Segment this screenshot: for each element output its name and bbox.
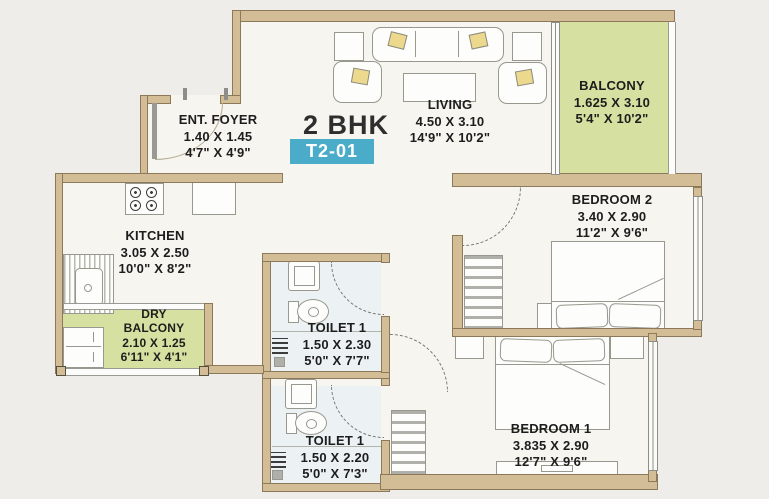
room-name: DRY (121, 307, 188, 321)
kitchen-platform (192, 182, 236, 215)
side-table (334, 32, 364, 61)
bed (551, 241, 665, 335)
wall (204, 303, 213, 374)
balcony-sliding-door (551, 22, 560, 175)
bed-line (496, 364, 609, 365)
room-dim-ft: 5'0" X 7'7" (303, 353, 372, 370)
balcony-railing (668, 22, 676, 174)
wall (262, 253, 390, 262)
dry-balcony-railing (62, 368, 205, 376)
room-dim-ft: 14'9" X 10'2" (410, 130, 490, 147)
bedside-table (455, 336, 484, 359)
room-dim-ft: 5'4" X 10'2" (574, 111, 650, 128)
washbasin (288, 261, 320, 291)
room-dim-m: 3.835 X 2.90 (511, 438, 592, 455)
room-dim-m: 1.50 X 2.30 (303, 337, 372, 354)
wall (55, 173, 283, 183)
duct-hatch (272, 338, 288, 354)
room-name: KITCHEN (119, 228, 192, 245)
washbasin-bowl (291, 384, 312, 404)
wall (452, 173, 702, 187)
bed (495, 334, 610, 430)
room-label-toilet-lower: TOILET 1 1.50 X 2.20 5'0" X 7'3" (301, 433, 370, 483)
pillow (500, 338, 553, 363)
armchair-cushion (351, 68, 370, 86)
plan-type-title: 2 BHK (303, 110, 389, 141)
sofa-divider (415, 31, 416, 57)
wc-bowl (295, 411, 327, 435)
railing-post (56, 366, 66, 376)
room-dim-ft: 4'7" X 4'9" (179, 145, 258, 162)
room-label-kitchen: KITCHEN 3.05 X 2.50 10'0" X 8'2" (119, 228, 192, 278)
pillow (553, 338, 606, 363)
unit-number-badge: T2-01 (290, 139, 374, 164)
wall (262, 371, 390, 379)
room-dim-m: 1.625 X 3.10 (574, 95, 650, 112)
sink-drain (84, 284, 92, 292)
room-label-living: LIVING 4.50 X 3.10 14'9" X 10'2" (410, 97, 490, 147)
room-label-bedroom2: BEDROOM 2 3.40 X 2.90 11'2" X 9'6" (572, 192, 653, 242)
room-dim-ft: 6'11" X 4'1" (121, 350, 188, 364)
room-dim-ft: 12'7" X 9'6" (511, 454, 592, 471)
sofa-divider (458, 31, 459, 57)
burner (130, 187, 141, 198)
armchair-cushion (515, 69, 534, 87)
wall (452, 235, 463, 333)
pillow (609, 303, 662, 329)
bedroom2-window (693, 196, 703, 321)
wardrobe (391, 410, 426, 476)
room-name: BEDROOM 1 (511, 421, 592, 438)
floor-plan: 2 BHK T2-01 LIVING 4.50 X 3.10 14'9" X 1… (0, 0, 769, 499)
room-dim-m: 2.10 X 1.25 (121, 336, 188, 350)
room-dim-m: 3.40 X 2.90 (572, 209, 653, 226)
bed-line (552, 301, 664, 302)
room-dim-ft: 10'0" X 8'2" (119, 261, 192, 278)
room-name: LIVING (410, 97, 490, 114)
blanket-fold (560, 363, 606, 385)
unit-handle (93, 332, 94, 342)
bedroom1-window (648, 341, 658, 471)
washbasin (285, 379, 317, 409)
room-dim-ft: 11'2" X 9'6" (572, 225, 653, 242)
room-label-dry-balcony: DRY BALCONY 2.10 X 1.25 6'11" X 4'1" (121, 307, 188, 365)
pillow (556, 303, 609, 329)
room-name: BEDROOM 2 (572, 192, 653, 209)
room-label-bedroom1: BEDROOM 1 3.835 X 2.90 12'7" X 9'6" (511, 421, 592, 471)
room-dim-m: 1.50 X 2.20 (301, 450, 370, 467)
room-name: TOILET 1 (301, 433, 370, 450)
side-table (512, 32, 542, 61)
duct-box (274, 357, 285, 367)
burner (146, 187, 157, 198)
wall (380, 474, 658, 490)
unit-shelf (66, 346, 101, 347)
washbasin-bowl (294, 266, 315, 286)
wall (140, 95, 148, 183)
burner (146, 200, 157, 211)
room-label-toilet-upper: TOILET 1 1.50 X 2.30 5'0" X 7'7" (303, 320, 372, 370)
wardrobe (464, 255, 503, 334)
room-label-balcony: BALCONY 1.625 X 3.10 5'4" X 10'2" (574, 78, 650, 128)
room-dim-m: 1.40 X 1.45 (179, 129, 258, 146)
blanket-fold (618, 278, 664, 300)
room-dim-m: 3.05 X 2.50 (119, 245, 192, 262)
duct-hatch (270, 452, 286, 468)
room-name: ENT. FOYER (179, 112, 258, 129)
room-name: BALCONY (574, 78, 650, 95)
wall (381, 316, 390, 373)
wall (452, 328, 702, 337)
wall (204, 365, 264, 374)
stove (125, 183, 164, 215)
room-dim-ft: 5'0" X 7'3" (301, 466, 370, 483)
door-frame-tick (224, 88, 228, 100)
wall (55, 173, 63, 374)
dry-balcony-unit (63, 327, 104, 368)
duct-box (272, 470, 283, 480)
room-dim-m: 4.50 X 3.10 (410, 114, 490, 131)
room-name: TOILET 1 (303, 320, 372, 337)
room-name: BALCONY (121, 321, 188, 335)
bedside-table (610, 336, 644, 359)
wall (262, 483, 390, 492)
burner (130, 200, 141, 211)
railing-post (199, 366, 209, 376)
unit-handle (93, 352, 94, 362)
wall (232, 10, 675, 22)
door-frame-tick (183, 88, 187, 100)
wall (232, 10, 241, 104)
room-label-ent-foyer: ENT. FOYER 1.40 X 1.45 4'7" X 4'9" (179, 112, 258, 162)
